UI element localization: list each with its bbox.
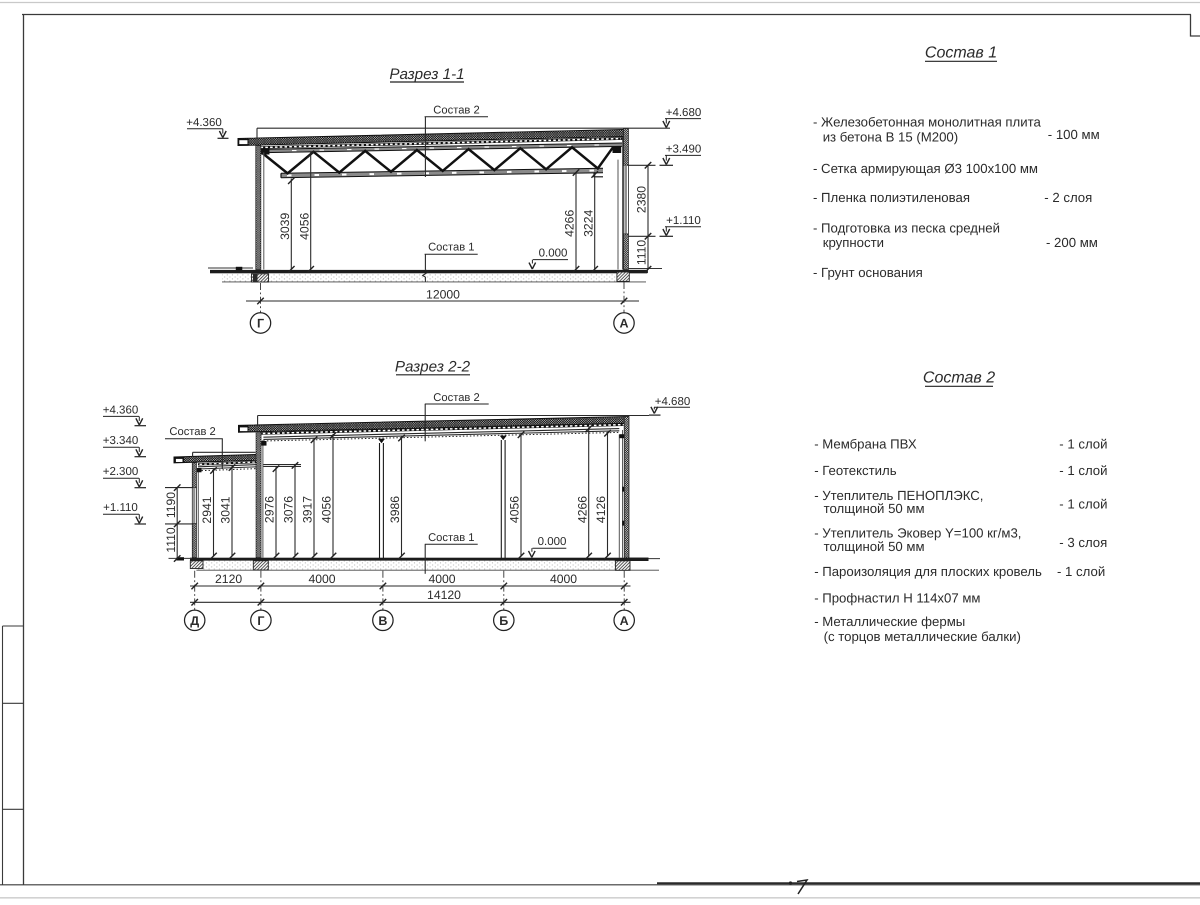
svg-text:0.000: 0.000 <box>538 536 567 548</box>
svg-text:4000: 4000 <box>308 572 335 586</box>
svg-text:из бетона В 15 (М200): из бетона В 15 (М200) <box>823 129 958 144</box>
svg-text:Состав 1: Состав 1 <box>428 532 474 544</box>
svg-text:1110: 1110 <box>164 527 178 553</box>
svg-text:1110: 1110 <box>635 240 649 266</box>
svg-text:4056: 4056 <box>508 496 522 523</box>
svg-text:0.000: 0.000 <box>539 248 568 260</box>
svg-text:4266: 4266 <box>563 210 577 237</box>
svg-text:- 1 слой: - 1 слой <box>1059 437 1107 452</box>
svg-text:4056: 4056 <box>320 496 334 523</box>
svg-text:14120: 14120 <box>427 588 461 602</box>
svg-text:- Подготовка из песка средней: - Подготовка из песка средней <box>813 220 1000 235</box>
svg-text:крупности: крупности <box>823 235 884 250</box>
svg-text:3224: 3224 <box>581 210 595 237</box>
svg-text:Разрез 2-2: Разрез 2-2 <box>395 359 471 376</box>
svg-text:- 1 слой: - 1 слой <box>1057 564 1105 579</box>
svg-text:2941: 2941 <box>200 496 214 523</box>
svg-text:3986: 3986 <box>388 496 402 523</box>
svg-text:- Геотекстиль: - Геотекстиль <box>814 463 897 478</box>
svg-text:- Профнастил Н 114х07 мм: - Профнастил Н 114х07 мм <box>814 590 980 605</box>
svg-text:4000: 4000 <box>550 572 577 586</box>
svg-text:толщиной 50 мм: толщиной 50 мм <box>824 501 925 516</box>
svg-text:4126: 4126 <box>594 496 608 523</box>
svg-text:- Металлические фермы: - Металлические фермы <box>814 614 965 629</box>
svg-text:3041: 3041 <box>219 496 233 523</box>
svg-text:А: А <box>619 317 628 331</box>
svg-text:- Сетка армирующая Ø3 100х100: - Сетка армирующая Ø3 100х100 мм <box>813 161 1038 176</box>
svg-text:Состав 1: Состав 1 <box>428 242 474 254</box>
svg-text:3917: 3917 <box>301 496 315 523</box>
svg-text:1190: 1190 <box>164 492 178 518</box>
svg-text:Состав 2: Состав 2 <box>169 426 215 438</box>
svg-text:толщиной 50 мм: толщиной 50 мм <box>824 539 925 554</box>
svg-text:3039: 3039 <box>278 213 292 240</box>
svg-text:12000: 12000 <box>426 288 460 302</box>
svg-text:4000: 4000 <box>428 572 455 586</box>
svg-text:Б: Б <box>499 614 508 628</box>
svg-text:Состав 2: Состав 2 <box>433 392 479 404</box>
svg-text:2380: 2380 <box>635 186 649 213</box>
svg-text:+1.110: +1.110 <box>666 215 701 227</box>
svg-text:- Пленка полиэтиленовая: - Пленка полиэтиленовая <box>813 190 970 205</box>
svg-text:- Железобетонная монолитная п: - Железобетонная монолитная плита <box>813 114 1042 129</box>
svg-text:+4.360: +4.360 <box>103 405 139 417</box>
svg-text:Г: Г <box>257 614 264 628</box>
svg-text:4266: 4266 <box>575 496 589 523</box>
svg-text:+4.680: +4.680 <box>655 396 691 408</box>
svg-text:Состав 2: Состав 2 <box>433 105 479 117</box>
svg-text:Д: Д <box>190 614 199 628</box>
svg-text:- 3 слоя: - 3 слоя <box>1059 535 1107 550</box>
svg-text:+4.680: +4.680 <box>666 107 702 119</box>
svg-text:+3.490: +3.490 <box>666 143 702 155</box>
svg-text:Состав 1: Состав 1 <box>925 45 997 62</box>
svg-text:Разрез 1-1: Разрез 1-1 <box>389 66 464 83</box>
svg-text:+3.340: +3.340 <box>103 435 139 447</box>
svg-text:- Грунт основания: - Грунт основания <box>813 265 923 280</box>
svg-text:+1.110: +1.110 <box>103 502 138 514</box>
svg-text:2120: 2120 <box>215 572 242 586</box>
svg-text:4056: 4056 <box>297 213 311 240</box>
svg-text:- 200 мм: - 200 мм <box>1046 235 1098 250</box>
svg-text:- Мембрана ПВХ: - Мембрана ПВХ <box>814 437 917 452</box>
svg-text:- 1 слой: - 1 слой <box>1059 497 1107 512</box>
svg-text:(с торцов металлические балки): (с торцов металлические балки) <box>824 629 1021 644</box>
svg-text:Г: Г <box>257 317 264 331</box>
svg-text:+4.360: +4.360 <box>186 117 222 129</box>
svg-text:- 1 слой: - 1 слой <box>1059 463 1107 478</box>
svg-text:Состав 2: Состав 2 <box>923 369 995 386</box>
svg-text:- 2 слоя: - 2 слоя <box>1044 190 1092 205</box>
svg-text:- 100 мм: - 100 мм <box>1048 127 1100 142</box>
svg-text:А: А <box>620 614 629 628</box>
svg-text:2976: 2976 <box>263 496 277 523</box>
svg-text:+2.300: +2.300 <box>103 466 139 478</box>
svg-text:3076: 3076 <box>282 496 296 523</box>
svg-text:В: В <box>378 614 387 628</box>
svg-text:- Пароизоляция для плоских кро: - Пароизоляция для плоских кровель <box>814 564 1042 579</box>
